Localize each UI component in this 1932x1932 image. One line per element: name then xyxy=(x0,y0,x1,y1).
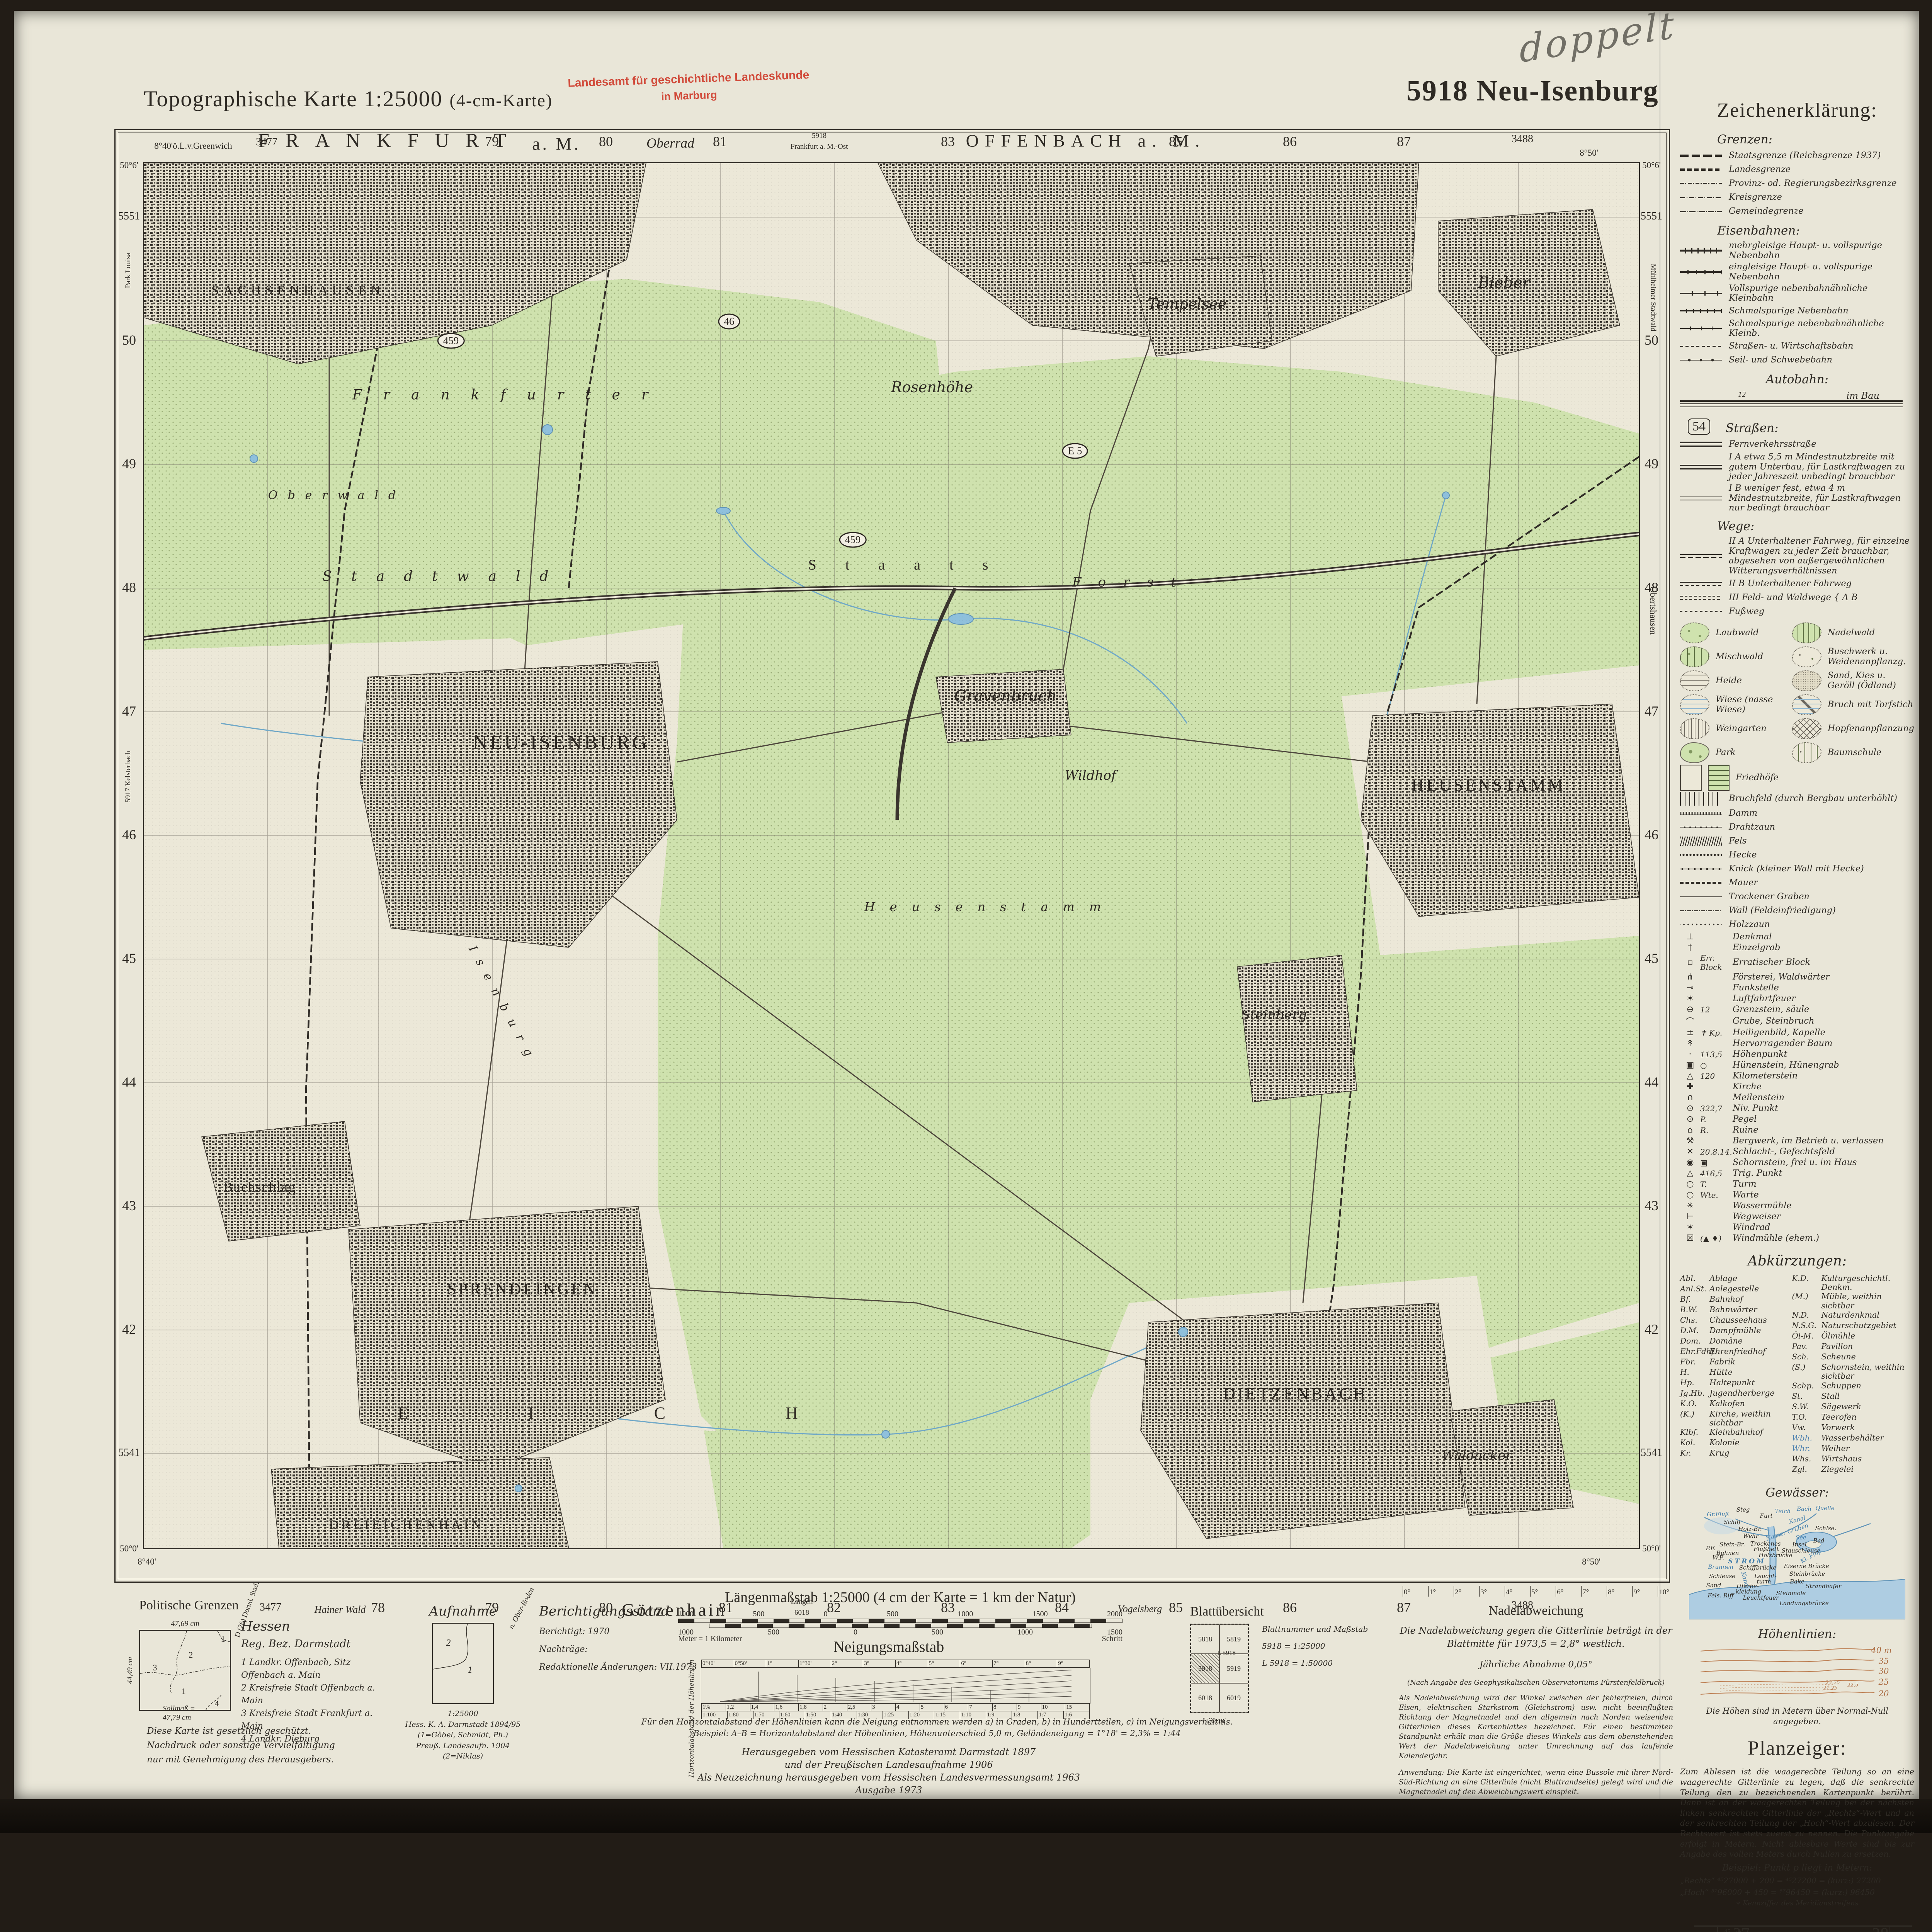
slope-degree-cell: 0°40' xyxy=(701,1660,734,1667)
water-feature-label: Gr.Fluß xyxy=(1707,1511,1729,1518)
abbreviation-row: Sch.Scheune xyxy=(1792,1352,1914,1362)
slope-percent-cell: 1,4 xyxy=(750,1704,774,1711)
map-margin-label: 46 xyxy=(122,827,136,843)
point-symbol-glyph: ✕ xyxy=(1680,1147,1700,1156)
landcover-swatch xyxy=(1792,622,1821,643)
legend-item: ⊢Wegweiser xyxy=(1680,1211,1914,1222)
abbreviation-row: Kol.Kolonie xyxy=(1680,1438,1786,1448)
degree-tick: 7° xyxy=(1581,1586,1589,1597)
place-label: Gravenbruch xyxy=(954,687,1057,705)
place-label: 46 xyxy=(718,314,740,330)
sheet-index-legend-1: 5918 = 1:25000 xyxy=(1262,1641,1368,1651)
legend-item: ▫Err. BlockErratischer Block xyxy=(1680,953,1914,972)
planzeiger-rechts-formula: „Rechts“ ⁴⁵27000 + 200 = ⁴⁵27200 = (kurz… xyxy=(1680,1876,1914,1886)
legend-section-abkuerzungen: Abkürzungen: xyxy=(1680,1253,1914,1269)
slope-percent-cell: 1,2 xyxy=(726,1704,750,1711)
map-margin-label: 83 xyxy=(941,133,955,150)
map-margin-label: 8°40' xyxy=(138,1557,156,1567)
degree-tick: 9° xyxy=(1632,1586,1640,1597)
declination-source: (Nach Angabe des Geophysikalischen Obser… xyxy=(1399,1679,1673,1687)
road-symbol xyxy=(1680,440,1722,449)
path-symbol xyxy=(1680,580,1722,588)
railway-symbol xyxy=(1680,324,1722,333)
place-label: 459 xyxy=(437,333,465,349)
place-label: SPRENDLINGEN xyxy=(447,1280,597,1299)
legend-item: ⊙322,7Niv. Punkt xyxy=(1680,1103,1914,1114)
point-symbol-glyph: ▫ xyxy=(1680,957,1700,967)
map-margin-label: 3488 xyxy=(1512,133,1533,145)
legend-item: Bruchfeld (durch Bergbau unterhöhlt) xyxy=(1680,791,1914,806)
legend-item: Weingarten xyxy=(1680,718,1789,739)
abbreviation-row: Zgl.Ziegelei xyxy=(1792,1464,1914,1475)
legend-item: Trockener Graben xyxy=(1680,890,1914,904)
path-symbol xyxy=(1680,552,1722,560)
place-label: E 5 xyxy=(1062,443,1088,459)
boundary-symbol xyxy=(1680,193,1722,202)
legend-item: Vollspurige nebenbahnähnliche Kleinbahn xyxy=(1680,283,1914,304)
contour-value-label: 22,5 xyxy=(1847,1682,1859,1688)
abbreviation-row: K.O.Kalkofen xyxy=(1680,1399,1786,1409)
slope-percent-cell: 15 xyxy=(1065,1704,1089,1711)
place-label: 459 xyxy=(839,532,867,548)
abbreviation-row: Whr.Weiher xyxy=(1792,1444,1914,1454)
slope-percent-cell: 3 xyxy=(871,1704,895,1711)
abbreviation-row: N.S.G.Naturschutzgebiet xyxy=(1792,1321,1914,1331)
point-symbol-glyph: ∩ xyxy=(1680,1093,1700,1102)
degree-tick: 2° xyxy=(1454,1586,1461,1597)
degree-tick: 0° xyxy=(1403,1586,1410,1597)
legend-item: ✚Kirche xyxy=(1680,1082,1914,1092)
survey-split-line xyxy=(433,1624,493,1703)
linear-scale-block: Längenmaßstab 1:25000 (4 cm der Karte = … xyxy=(657,1589,1144,1643)
scale-tick-label: 500 xyxy=(887,1610,898,1619)
legend-item: Provinz- od. Regierungsbezirksgrenze xyxy=(1680,177,1914,190)
legend-item: Sand, Kies u. Geröll (Ödland) xyxy=(1792,670,1914,691)
copyright-block: Diese Karte ist gesetzlich geschützt.Nac… xyxy=(147,1724,394,1767)
water-feature-label: Furt xyxy=(1760,1512,1772,1519)
point-symbol-glyph: ⌒ xyxy=(1680,1015,1700,1027)
railway-symbol xyxy=(1680,342,1722,350)
line-feature-symbol xyxy=(1680,792,1722,806)
abbreviation-row: H.Hütte xyxy=(1680,1367,1786,1378)
place-label: HEUSENSTAMM xyxy=(1412,776,1565,795)
map-margin-label: 5541 xyxy=(1641,1447,1662,1459)
contour-value-label: 23,75 xyxy=(1825,1680,1840,1685)
map-margin-label: 44 xyxy=(1645,1074,1658,1090)
scale-digit: 9 xyxy=(1738,1929,1741,1932)
legend-item-friedhoefe: Friedhöfe xyxy=(1680,765,1914,791)
survey-diagram: 2 1 xyxy=(432,1623,494,1704)
map-margin-label: 50°6' xyxy=(1642,160,1661,170)
map-margin-label: 46 xyxy=(1645,827,1658,843)
abbreviation-row: Whs.Wirtshaus xyxy=(1792,1454,1914,1464)
map-margin-label: 8°50' xyxy=(1580,148,1598,158)
water-feature-label: Steinbrücke xyxy=(1789,1570,1825,1577)
landcover-swatch xyxy=(1792,646,1821,667)
point-symbol-glyph: ⊖ xyxy=(1680,1005,1700,1014)
point-symbol-glyph: ☒ xyxy=(1680,1233,1700,1243)
map-margin-label: 5917 Kelsterbach xyxy=(124,751,133,802)
road-symbol xyxy=(1680,463,1722,471)
scale-tick-label: 500 xyxy=(753,1610,764,1619)
map-margin-label: 49 xyxy=(122,456,136,472)
declination-degree-scale: 0°1°2°3°4°5°6°7°8°9°10° xyxy=(1403,1586,1669,1597)
water-feature-label: turm xyxy=(1757,1578,1771,1585)
slope-percent-cell: 4 xyxy=(895,1704,920,1711)
planzeiger-footnote: ∗ Kennziffer des Meridianstreifens xyxy=(1680,1899,1914,1908)
water-feature-label: Quelle xyxy=(1815,1505,1834,1512)
contour-value-label: 30 xyxy=(1879,1667,1889,1676)
autobahn-symbol: 12 im Bau xyxy=(1680,390,1914,415)
slope-degree-cell: 1° xyxy=(766,1660,798,1667)
sheet-index-cell: 6018 xyxy=(1191,1683,1219,1713)
map-margin-label: 81 xyxy=(713,133,727,150)
legend-item: ☒(▲ ♦)Windmühle (ehem.) xyxy=(1680,1233,1914,1244)
degree-tick: 3° xyxy=(1479,1586,1487,1597)
path-symbol xyxy=(1680,607,1722,616)
abbreviation-row: Klbf.Kleinbahnhof xyxy=(1680,1427,1786,1438)
map-margin-label: 85 xyxy=(1169,1599,1183,1616)
legend-item: ⌒Grube, Steinbruch xyxy=(1680,1015,1914,1027)
place-label: Staats xyxy=(808,556,1017,573)
legend-item: ✶Windrad xyxy=(1680,1222,1914,1233)
point-symbol-glyph: ⊥ xyxy=(1680,932,1700,942)
abbreviation-row: (M.)Mühle, weithin sichtbar xyxy=(1792,1292,1914,1310)
abbreviation-row: N.D.Naturdenkmal xyxy=(1792,1310,1914,1321)
contour-value-label: 21,25 xyxy=(1823,1685,1837,1691)
map-margin-label: 42 xyxy=(122,1321,136,1337)
map-margin-label: 43 xyxy=(1645,1197,1658,1214)
map-margin-label: 45 xyxy=(122,950,136,966)
map-margin-label: Obertshausen xyxy=(1648,586,1658,634)
place-label: Forst xyxy=(1072,575,1194,590)
water-feature-label: Steg xyxy=(1736,1506,1750,1513)
planzeiger-title: Planzeiger: xyxy=(1680,1737,1914,1760)
legend-item: Wall (Feldeinfriedigung) xyxy=(1680,904,1914,918)
legend-item: ⊙P.Pegel xyxy=(1680,1114,1914,1125)
line-feature-symbol xyxy=(1680,920,1722,929)
legend-item: eingleisige Haupt- u. vollspurige Nebenb… xyxy=(1680,261,1914,282)
abbreviation-row: (S.)Schornstein, weithin sichtbar xyxy=(1792,1362,1914,1381)
abbreviation-row: K.D.Kulturgeschichtl. Denkm. xyxy=(1792,1274,1914,1292)
map-margin-label: 47 xyxy=(1645,703,1658,719)
degree-tick: 6° xyxy=(1556,1586,1563,1597)
scale-tick-label: 1500 xyxy=(1107,1628,1122,1637)
point-symbol-glyph: ↟ xyxy=(1680,1039,1700,1048)
contour-note: Die Höhen sind in Metern über Normal-Nul… xyxy=(1692,1706,1903,1727)
road-number-badge: 54 xyxy=(1688,418,1710,435)
landcover-swatch xyxy=(1680,694,1709,715)
abbreviation-row: (K.)Kirche, weithin sichtbar xyxy=(1680,1409,1786,1428)
legend-item: Laubwald xyxy=(1680,622,1789,643)
road-symbol xyxy=(1680,494,1722,503)
planzeiger-example-title: Beispiel: Punkt p liegt in Metern: xyxy=(1680,1862,1914,1874)
legend-item: ○Wte.Warte xyxy=(1680,1190,1914,1201)
point-symbol-glyph: ◉ xyxy=(1680,1158,1700,1167)
slope-caption-1: Für den Horizontalabstand der Höhenlinie… xyxy=(483,1717,1391,1726)
legend-item: Damm xyxy=(1680,806,1914,820)
legend-item: III Feld- und Waldwege { A B xyxy=(1680,591,1914,605)
slope-percent-cell: 1,6 xyxy=(774,1704,798,1711)
legend-item: Hopfenanpflanzung xyxy=(1792,718,1914,739)
map-margin-label: 43 xyxy=(122,1197,136,1214)
legend-section-hoehenlinien: Höhenlinien: xyxy=(1680,1627,1914,1641)
legend-section-grenzen: Grenzen: xyxy=(1717,133,1914,146)
legend-item: †Einzelgrab xyxy=(1680,942,1914,953)
sheet-index-cell: 6019 xyxy=(1219,1683,1248,1713)
legend-item: ✶Luftfahrtfeuer xyxy=(1680,993,1914,1004)
map-margin-label: FRANKFURT xyxy=(258,129,522,152)
legend-item: Fernverkehrsstraße xyxy=(1680,437,1914,451)
abbreviation-row: Fbr.Fabrik xyxy=(1680,1357,1786,1367)
abbreviation-row: Hp.Haltepunkt xyxy=(1680,1378,1786,1388)
scale-bar: 10005000500100015002000 1000500050010001… xyxy=(678,1610,1122,1634)
line-feature-symbol xyxy=(1680,837,1722,846)
copyright-line: Diese Karte ist gesetzlich geschützt. xyxy=(147,1724,394,1738)
slope-degree-cell: 8° xyxy=(1025,1660,1057,1667)
map-margin-label: 85 xyxy=(1169,133,1183,150)
water-feature-label: W.F. xyxy=(1713,1554,1724,1561)
line-feature-symbol xyxy=(1680,893,1722,901)
slope-percent-cell: 2 xyxy=(823,1704,847,1711)
contour-art xyxy=(1697,1644,1898,1702)
water-feature-label: Bach xyxy=(1797,1505,1811,1512)
map-margin-label: 80 xyxy=(599,133,613,150)
water-features-diagram: Gr.FlußStegFurtTeichBachQuelleKanalSchil… xyxy=(1689,1503,1905,1619)
slope-percent-cell: 8 xyxy=(992,1704,1017,1711)
contour-value-label: 20 xyxy=(1879,1689,1889,1698)
legend-item: Holzzaun xyxy=(1680,918,1914,932)
slope-degree-cell: 4° xyxy=(895,1660,928,1667)
map-margin-label: 50°0' xyxy=(120,1544,138,1554)
legend-item: ·113,5Höhenpunkt xyxy=(1680,1049,1914,1060)
place-label: SACHSENHAUSEN xyxy=(212,283,385,298)
map-margin-label: 44 xyxy=(122,1074,136,1090)
slope-fan-art xyxy=(701,1668,1090,1704)
abbreviation-row: Öl-M.Ölmühle xyxy=(1792,1331,1914,1342)
point-symbol-glyph: ⊢ xyxy=(1680,1212,1700,1221)
sheet-index-legend-title: Blattnummer und Maßstab xyxy=(1262,1624,1368,1634)
place-label: Heusenstamm xyxy=(864,900,1116,914)
contour-value-label: 25 xyxy=(1879,1677,1889,1687)
legend-item: Drahtzaun xyxy=(1680,820,1914,834)
map-margin-label: 87 xyxy=(1397,133,1411,150)
publisher-line: Als Neuzeichnung herausgegeben vom Hessi… xyxy=(599,1771,1179,1784)
legend-item: II B Unterhaltener Fahrweg xyxy=(1680,577,1914,591)
water-feature-label: Holz-Br. xyxy=(1738,1526,1762,1532)
grid-vertical-line xyxy=(1889,1927,1889,1932)
water-feature-label: Wehr xyxy=(1743,1532,1759,1539)
scale-bar-upper xyxy=(678,1619,1122,1623)
autobahn-line-sample xyxy=(1680,400,1903,407)
map-margin-label: 50°6' xyxy=(120,160,138,170)
slope-degree-cell: 3° xyxy=(863,1660,895,1667)
map-margin-label: Frankfurt a. M.-Ost xyxy=(791,143,848,151)
point-symbol-glyph: ± xyxy=(1680,1028,1700,1037)
place-label: Bieber xyxy=(1478,274,1530,292)
map-margin-label: Mühlheimer Stadtwald xyxy=(1649,264,1657,332)
water-feature-label: Steinmole xyxy=(1776,1590,1806,1597)
planzeiger-text: Zum Ablesen ist die waagerechte Teilung … xyxy=(1680,1767,1914,1859)
sheet-number-title: 5918 Neu-Isenburg xyxy=(1406,74,1659,108)
legend-item: Heide xyxy=(1680,670,1789,691)
point-symbol-glyph: ✶ xyxy=(1680,1223,1700,1232)
water-feature-label: Schilf xyxy=(1724,1519,1740,1526)
abbreviation-row: Pav.Pavillon xyxy=(1792,1342,1914,1352)
revision-line: Redaktionelle Änderungen: VII.1973 xyxy=(539,1658,705,1676)
legend-section-eisenbahnen: Eisenbahnen: xyxy=(1717,224,1914,238)
water-feature-label: Leuchtfeuer xyxy=(1743,1594,1779,1601)
page-title-suffix: (4-cm-Karte) xyxy=(450,90,553,110)
water-feature-label: Brunnen xyxy=(1708,1563,1733,1570)
degree-tick: 1° xyxy=(1428,1586,1436,1597)
legend-item: Mauer xyxy=(1680,876,1914,890)
legend-item: Bruch mit Torfstich xyxy=(1792,694,1914,715)
place-label: Steinberg xyxy=(1241,1007,1307,1023)
legend-title: Zeichenerklärung: xyxy=(1680,99,1914,122)
abbreviation-row: D.M.Dampfmühle xyxy=(1680,1326,1786,1336)
legend-item: Staatsgrenze (Reichsgrenze 1937) xyxy=(1680,149,1914,163)
water-feature-label: Teich xyxy=(1775,1508,1791,1515)
legend-item: Straßen- u. Wirtschaftsbahn xyxy=(1680,339,1914,353)
sheet-index-cell: 5818 xyxy=(1191,1624,1219,1654)
map-margin-label: 5551 xyxy=(118,210,140,223)
sheet-outline-diagram: 47,69 cm 44,49 cm Sollmaß = 47,79 cm 3 2… xyxy=(139,1630,231,1711)
scale-tick-label: 1000 xyxy=(957,1610,973,1619)
legend-item: ◉▣Schornstein, frei u. im Haus xyxy=(1680,1157,1914,1168)
legend-item: Landesgrenze xyxy=(1680,163,1914,177)
copyright-line: Nachdruck oder sonstige Vervielfältigung xyxy=(147,1738,394,1753)
place-label: Stadtwald xyxy=(323,569,568,585)
place-label: Frankfurter xyxy=(352,387,669,403)
scale-tick-label: 0 xyxy=(824,1610,828,1619)
landcover-swatch xyxy=(1680,742,1709,763)
landcover-swatch xyxy=(1792,718,1821,739)
slope-degree-cell: 1°30' xyxy=(798,1660,831,1667)
abbreviation-row: Abl.Ablage xyxy=(1680,1274,1786,1284)
map-margin-label: 5918 xyxy=(812,132,827,140)
legend-item: Seil- und Schwebebahn xyxy=(1680,353,1914,367)
water-feature-label: Strandhafer xyxy=(1806,1583,1841,1590)
slope-degree-cell: 0°50' xyxy=(734,1660,766,1667)
contour-value-label: 35 xyxy=(1879,1656,1889,1666)
legend-item: ±✝ Kp.Heiligenbild, Kapelle xyxy=(1680,1027,1914,1038)
scale-tick-label: 1000 xyxy=(678,1628,694,1637)
abbreviation-row: T.O.Teerofen xyxy=(1792,1412,1914,1423)
planzeiger-hoch-formula: „Hoch“ ⁵⁷96000 + 450 = ⁵⁷96450 = (kurz:)… xyxy=(1680,1887,1914,1897)
point-symbol-glyph: △ xyxy=(1680,1071,1700,1081)
water-feature-label: Holzbrücke xyxy=(1759,1552,1793,1559)
legend-item: Baumschule xyxy=(1792,742,1914,763)
abbreviation-row: Wbh.Wasserbehälter xyxy=(1792,1433,1914,1444)
survey-credit-line: Preuß. Landesaufn. 1904 xyxy=(405,1741,521,1752)
landcover-swatch xyxy=(1792,742,1821,763)
point-symbol-glyph: ⊙ xyxy=(1680,1114,1700,1124)
map-margin-label: Park Louisa xyxy=(124,253,133,288)
railway-symbol xyxy=(1680,247,1722,255)
degree-tick: 8° xyxy=(1607,1586,1614,1597)
place-label: Oberwald xyxy=(268,489,406,502)
landcover-legend: LaubwaldNadelwaldMischwaldBuschwerk u. W… xyxy=(1680,622,1914,763)
point-symbol-glyph: △ xyxy=(1680,1168,1700,1178)
water-feature-label: Bake xyxy=(1790,1578,1804,1585)
legend-item: ⊥Denkmal xyxy=(1680,932,1914,942)
declination-annual-change: Jährliche Abnahme 0,05° xyxy=(1399,1660,1673,1670)
water-feature-label: See xyxy=(1796,1534,1806,1541)
publisher-block: Herausgegeben vom Hessischen Katasteramt… xyxy=(599,1746,1179,1797)
slope-degree-cell: 9° xyxy=(1057,1660,1089,1667)
map-margin-label: 50 xyxy=(122,332,136,348)
slope-caption-2: Beispiel: A–B = Horizontalabstand der Hö… xyxy=(483,1729,1391,1738)
water-feature-label: Stein-Br. xyxy=(1719,1541,1745,1548)
map-margin-label: a. M. xyxy=(532,134,581,154)
legend-section-wege: Wege: xyxy=(1717,519,1914,533)
landcover-swatch xyxy=(1680,622,1709,643)
map-margin-label: 50 xyxy=(1645,332,1658,348)
contour-lines-diagram: 40 m3530252023,7522,521,25 xyxy=(1697,1644,1898,1702)
publisher-line: und der Preußischen Landesaufnahme 1906 xyxy=(599,1759,1179,1771)
sheet-index-legend-2: L 5918 = 1:50000 xyxy=(1262,1658,1368,1668)
abbreviation-row: Bf.Bahnhof xyxy=(1680,1294,1786,1305)
water-feature-label: Schiffbrücke xyxy=(1739,1564,1777,1571)
legend-item: ⚒Bergwerk, im Betrieb u. verlassen xyxy=(1680,1136,1914,1146)
railway-symbol xyxy=(1680,289,1722,298)
legend-item: ✳Wassermühle xyxy=(1680,1201,1914,1211)
point-symbol-glyph: ⊸ xyxy=(1680,983,1700,993)
map-canvas: SACHSENHAUSENTempelseeRosenhöheBieberFra… xyxy=(143,162,1640,1549)
declination-definition: Als Nadelabweichung wird der Winkel zwis… xyxy=(1399,1694,1673,1761)
place-label: E I C H xyxy=(398,1403,856,1423)
sheet-index-l5918: L 5918 xyxy=(1217,1649,1236,1657)
legend-section-autobahn: Autobahn: xyxy=(1680,372,1914,386)
point-symbol-glyph: ⊙ xyxy=(1680,1104,1700,1113)
point-symbol-glyph: ⌂ xyxy=(1680,1125,1700,1135)
legend-item: II A Unterhaltener Fahrweg, für einzelne… xyxy=(1680,536,1914,577)
political-boundaries-block: Politische Grenzen 47,69 cm 44,49 cm Sol… xyxy=(139,1598,379,1745)
sheet-index-grid: 581858195918591960186019 xyxy=(1190,1624,1249,1713)
map-margin-label: 8°50' xyxy=(1582,1557,1600,1567)
point-symbol-glyph: ⋔ xyxy=(1680,972,1700,982)
map-margin-label: Oberrad xyxy=(646,135,694,151)
water-feature-label: Schleuse xyxy=(1709,1573,1735,1580)
scale-tick-label: 1500 xyxy=(1032,1610,1048,1619)
legend-item: I A etwa 5,5 m Mindestnutzbreite mit gut… xyxy=(1680,451,1914,483)
slope-percent-cell: 6 xyxy=(944,1704,968,1711)
slope-degree-cell: 6° xyxy=(960,1660,992,1667)
legend-item: Fels xyxy=(1680,834,1914,848)
boundary-symbol xyxy=(1680,165,1722,174)
map-margin-label: 49 xyxy=(1645,456,1658,472)
abbreviation-row: B.W.Bahnwärter xyxy=(1680,1305,1786,1315)
legend-item: Fußweg xyxy=(1680,605,1914,619)
landcover-swatch xyxy=(1792,670,1821,691)
legend-item: Park xyxy=(1680,742,1789,763)
water-feature-label: Sand xyxy=(1706,1582,1721,1589)
line-feature-symbol xyxy=(1680,823,1722,832)
legend-item: △120Kilometerstein xyxy=(1680,1071,1914,1082)
point-symbol-glyph: ✳ xyxy=(1680,1201,1700,1211)
landcover-swatch xyxy=(1680,718,1709,739)
legend-item: Schmalspurige Nebenbahn xyxy=(1680,304,1914,318)
map-margin-label: 48 xyxy=(122,579,136,595)
slope-degree-cell: 7° xyxy=(992,1660,1025,1667)
scale-tick-label: 0 xyxy=(854,1628,857,1637)
slope-degree-cell: 5° xyxy=(928,1660,960,1667)
slope-degree-cell: 2° xyxy=(831,1660,863,1667)
legend-item: ↟Hervorragender Baum xyxy=(1680,1038,1914,1049)
abbreviation-row: S.W.Sägewerk xyxy=(1792,1402,1914,1412)
region-district: Reg. Bez. Darmstadt xyxy=(241,1636,379,1652)
